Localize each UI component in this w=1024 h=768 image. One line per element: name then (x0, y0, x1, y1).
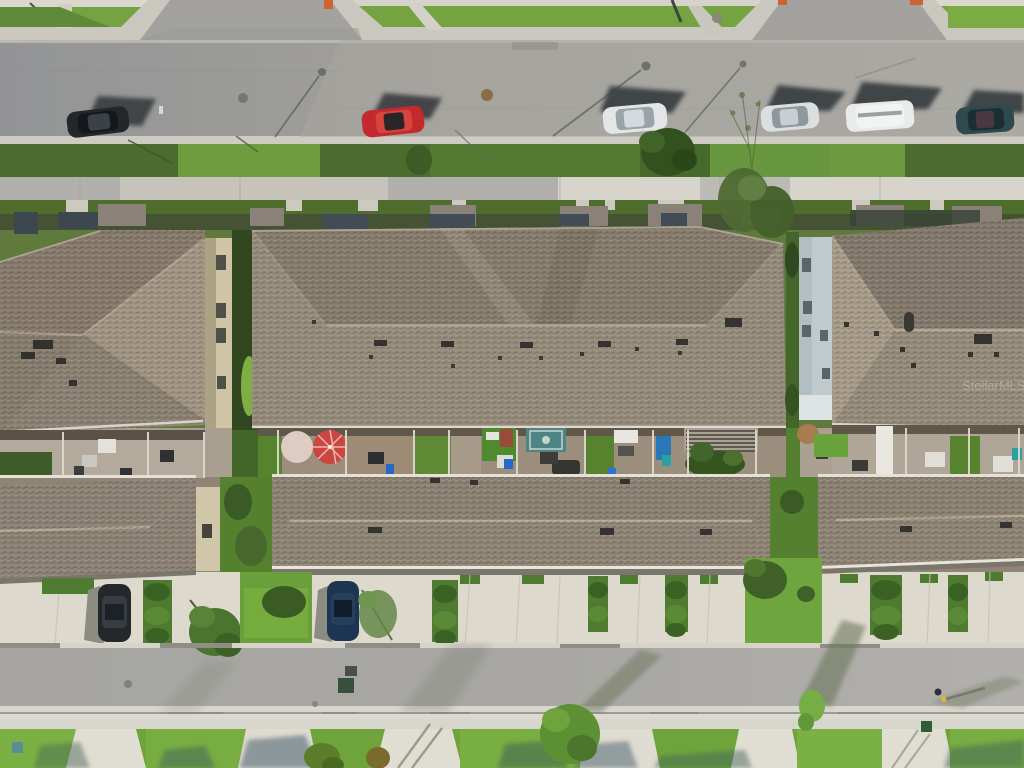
svg-text:StellarMLS: StellarMLS (962, 378, 1024, 393)
